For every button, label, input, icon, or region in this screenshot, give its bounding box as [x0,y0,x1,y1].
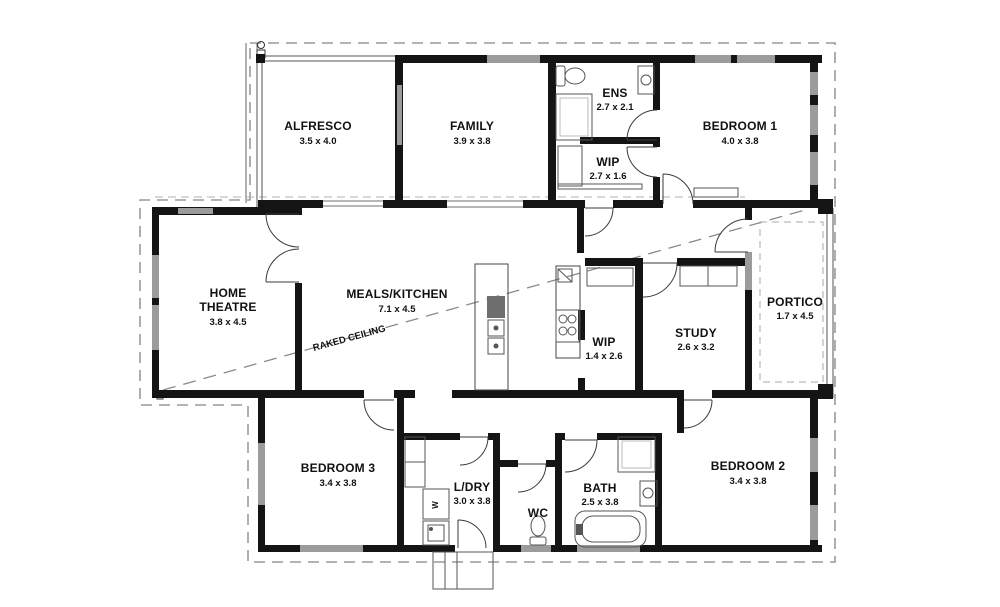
home-theatre-door-arc [266,214,299,247]
wip-robe-label: WIP [596,155,619,169]
bath-label: BATH [583,481,616,495]
bedroom2-dims: 3.4 x 3.8 [730,476,767,487]
bath-door-arc [565,440,597,472]
home-theatre-label-2: THEATRE [199,300,256,314]
home-theatre-dims: 3.8 x 4.5 [210,317,248,328]
ens-label: ENS [602,86,627,100]
laundry-door-arc [460,437,488,465]
steps-icon [433,552,493,589]
ens-toilet-icon [556,66,585,86]
home-theatre-label-1: HOME [210,286,247,300]
hall-door-arc [585,208,613,236]
bath-dims: 2.5 x 3.8 [582,497,619,508]
kitchen-bench-icon [556,266,580,358]
ens-door-arc [627,110,657,140]
bedroom2-label: BEDROOM 2 [711,459,786,473]
ens-shower-icon [556,94,592,140]
wip-pantry-label: WIP [592,335,615,349]
study-door-arc [643,263,677,297]
front-door-arc [715,219,748,252]
bedroom3-door-arc [364,400,394,430]
wc-label: WC [528,506,549,520]
window-mullion [731,55,737,63]
laundry-exit-door-arc [458,520,486,548]
wip-robe-dims: 2.7 x 1.6 [590,171,627,182]
study-dims: 2.6 x 3.2 [678,342,715,353]
bath-vanity-icon [640,481,657,506]
ldry-dims: 3.0 x 3.8 [454,496,491,507]
study-desk-icon [680,266,737,286]
room-labels: ALFRESCO 3.5 x 4.0 FAMILY 3.9 x 3.8 ENS … [199,86,823,520]
meals-kitchen-dims: 7.1 x 4.5 [379,304,417,315]
ens-dims: 2.7 x 2.1 [597,102,635,113]
alfresco-dims: 3.5 x 4.0 [300,136,337,147]
wip-pantry-dims: 1.4 x 2.6 [586,351,623,362]
home-theatre-door-arc [266,249,299,282]
pantry-shelf-icon [587,268,633,286]
ldry-label: L/DRY [454,480,491,494]
bedroom1-label: BEDROOM 1 [703,119,778,133]
kitchen-island-icon [475,264,508,390]
wip-door-arc [627,147,657,177]
bedroom1-robe-icon [694,188,738,197]
wc-toilet-icon [530,516,546,545]
bedroom1-door-arc [663,174,693,204]
washer-glyph: W [431,501,440,509]
raked-ceiling-label: RAKED CEILING [312,323,387,354]
bathtub-icon [575,511,646,547]
family-label: FAMILY [450,119,494,133]
ens-vanity-icon [638,66,654,94]
linen-cupboard-icon [405,437,425,487]
bedroom3-label: BEDROOM 3 [301,461,376,475]
portico-edge [827,208,833,398]
family-dims: 3.9 x 3.8 [454,136,491,147]
survey-marker-icon [157,42,265,400]
meals-kitchen-label: MEALS/KITCHEN [346,287,447,301]
raked-ceiling-line [163,210,805,390]
floor-plan-drawing: ALFRESCO 3.5 x 4.0 FAMILY 3.9 x 3.8 ENS … [0,0,1000,607]
fence-line [246,43,257,203]
laundry-trough-icon [423,521,449,545]
bath-shower-icon [618,437,655,472]
bedroom3-dims: 3.4 x 3.8 [320,478,357,489]
alfresco-label: ALFRESCO [284,119,352,133]
wc-door-arc [518,464,546,492]
floor-plan: ALFRESCO 3.5 x 4.0 FAMILY 3.9 x 3.8 ENS … [0,0,1000,607]
bedroom2-door-arc [684,400,712,428]
portico-label: PORTICO [767,295,823,309]
portico-dims: 1.7 x 4.5 [777,311,815,322]
bedroom1-dims: 4.0 x 3.8 [722,136,759,147]
study-label: STUDY [675,326,717,340]
